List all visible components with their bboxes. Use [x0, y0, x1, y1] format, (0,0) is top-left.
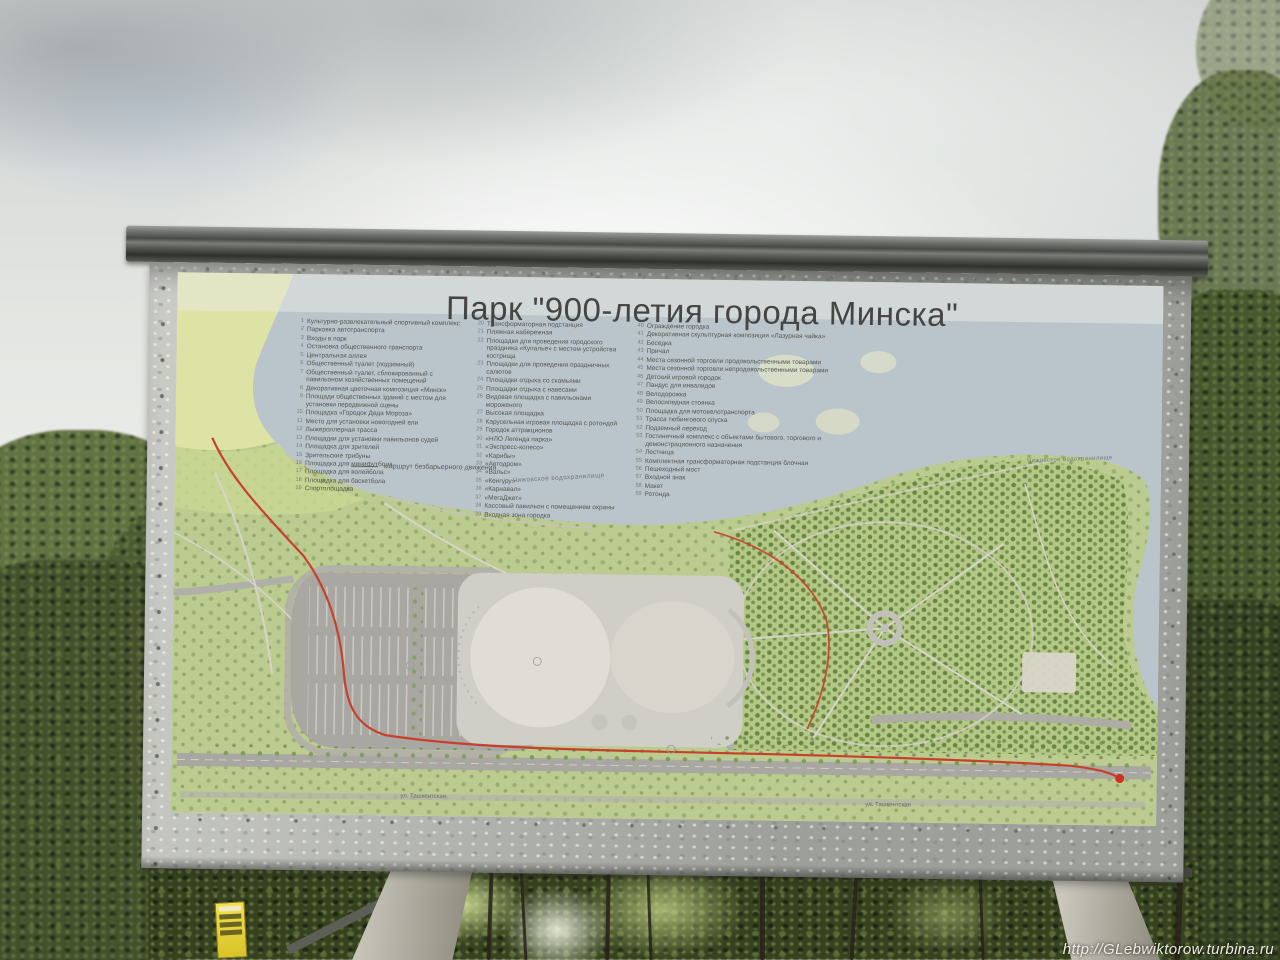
sign-text-line: [219, 913, 241, 919]
street-label-left: ул. Ташкентская: [400, 793, 446, 800]
small-yellow-sign: [215, 901, 248, 958]
photo-watermark: http://GLebwiktorow.turbina.ru: [1063, 941, 1274, 958]
legend-item: 9Площади общественных зданий с местом дл…: [294, 393, 470, 410]
legend-column-2: 20Трансформаторная подстанция21Пляжная н…: [472, 320, 627, 521]
legend-item: 22Площадки для проведения городского пра…: [474, 337, 626, 362]
street-label-right: ул. Ташкентская: [865, 802, 911, 809]
route-dash-icon: [351, 465, 378, 467]
sign-text-line: [220, 921, 242, 927]
sign-text-line: [219, 905, 241, 911]
legend-column-3: 40Ограждение городка41Декоративная скуль…: [633, 323, 867, 503]
photo-scene: Парк "900-летия города Минска" 1Культурн…: [0, 0, 1280, 960]
legend-item: 7Общественный туалет, сблокированный с п…: [294, 369, 470, 386]
sign-text-line: [220, 929, 242, 935]
park-map-billboard: Парк "900-летия города Минска" 1Культурн…: [117, 226, 1208, 893]
legend-item: 39Входная зона городка: [472, 511, 624, 521]
legend-item: 26Видовая площадка с павильонами морожен…: [474, 394, 626, 411]
legend-item: 23Площадки для проведения праздничных са…: [474, 361, 626, 378]
park-map-poster: Парк "900-летия города Минска" 1Культурн…: [170, 272, 1163, 826]
legend-item: 19Спортплощадка: [293, 485, 469, 495]
